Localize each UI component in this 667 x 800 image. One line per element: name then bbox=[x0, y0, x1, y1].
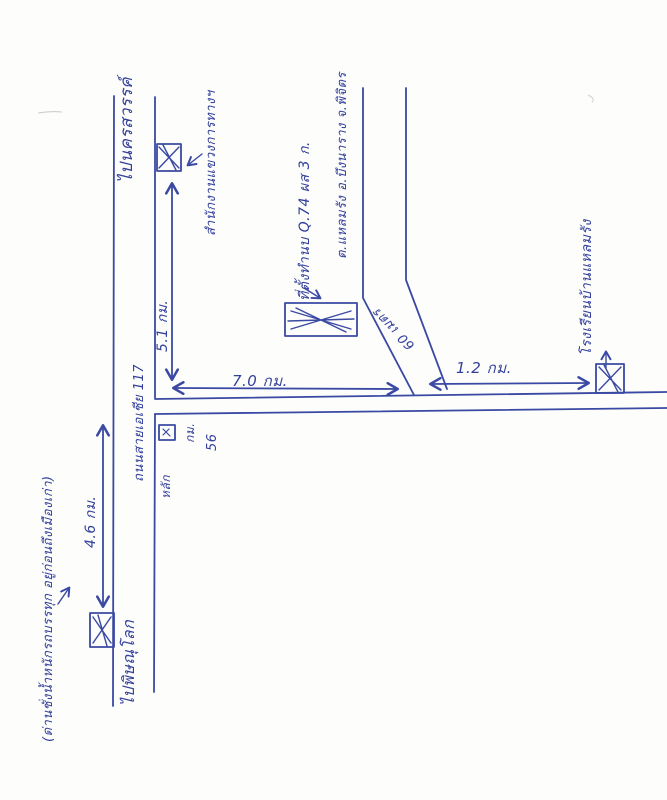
km-post-mark bbox=[163, 429, 170, 436]
scanned-map-page: ไปนครสวรรค์ สำนักงานแขวงการทางฯ 5.1 กม. … bbox=[0, 0, 667, 800]
highway-office-x-mark bbox=[159, 145, 179, 170]
distance-access-to-school-label: 1.2 กม. bbox=[456, 360, 512, 377]
main-road-name-label: ถนนสายเอเชีย 117 bbox=[133, 364, 147, 482]
km-post-prefix-label: หลัก bbox=[160, 475, 173, 499]
pencil-smudge bbox=[588, 95, 593, 102]
distance-junction-to-station-label: 4.6 กม. bbox=[84, 496, 99, 548]
project-site-label-line2: ต.แหลมรัง อ.บึงนาราง จ.พิจิตร bbox=[336, 72, 350, 259]
to-nakhon-sawan-label: ไปนครสวรรค์ bbox=[118, 77, 137, 183]
to-phitsanulok-label: ไปพิษณุโลก bbox=[120, 620, 138, 706]
school-x-mark bbox=[599, 365, 621, 392]
roadside-note-label: (ด่านชั่งน้ำหนักรถบรรทุก อยู่ก่อนถึงเมือ… bbox=[42, 475, 56, 742]
distance-arrow-access-to-school bbox=[431, 383, 588, 384]
pencil-smudge bbox=[38, 112, 62, 113]
east-road-south-edge bbox=[155, 408, 667, 414]
distance-office-to-junction-label: 5.1 กม. bbox=[156, 300, 171, 352]
weigh-station-x-mark bbox=[93, 615, 111, 646]
map-sketch-svg bbox=[0, 0, 667, 800]
east-road-north-edge bbox=[155, 392, 667, 399]
distance-junction-to-access-label: 7.0 กม. bbox=[232, 373, 288, 390]
school-label: โรงเรียนบ้านแหลมรัง bbox=[580, 219, 595, 356]
project-site-scribble bbox=[288, 308, 354, 332]
office-pointer-arrow bbox=[188, 154, 202, 165]
km-post-unit-label: กม. bbox=[184, 423, 197, 444]
highway-office-label: สำนักงานแขวงการทางฯ bbox=[205, 90, 219, 236]
note-pointer-arrow bbox=[58, 588, 69, 604]
main-road-east-edge-south bbox=[154, 414, 155, 692]
km-post-number-label: 56 bbox=[206, 433, 220, 451]
project-site-label-line1: ที่ตั้งทำนบ Q.74 ผส 3 ก. bbox=[298, 141, 313, 301]
